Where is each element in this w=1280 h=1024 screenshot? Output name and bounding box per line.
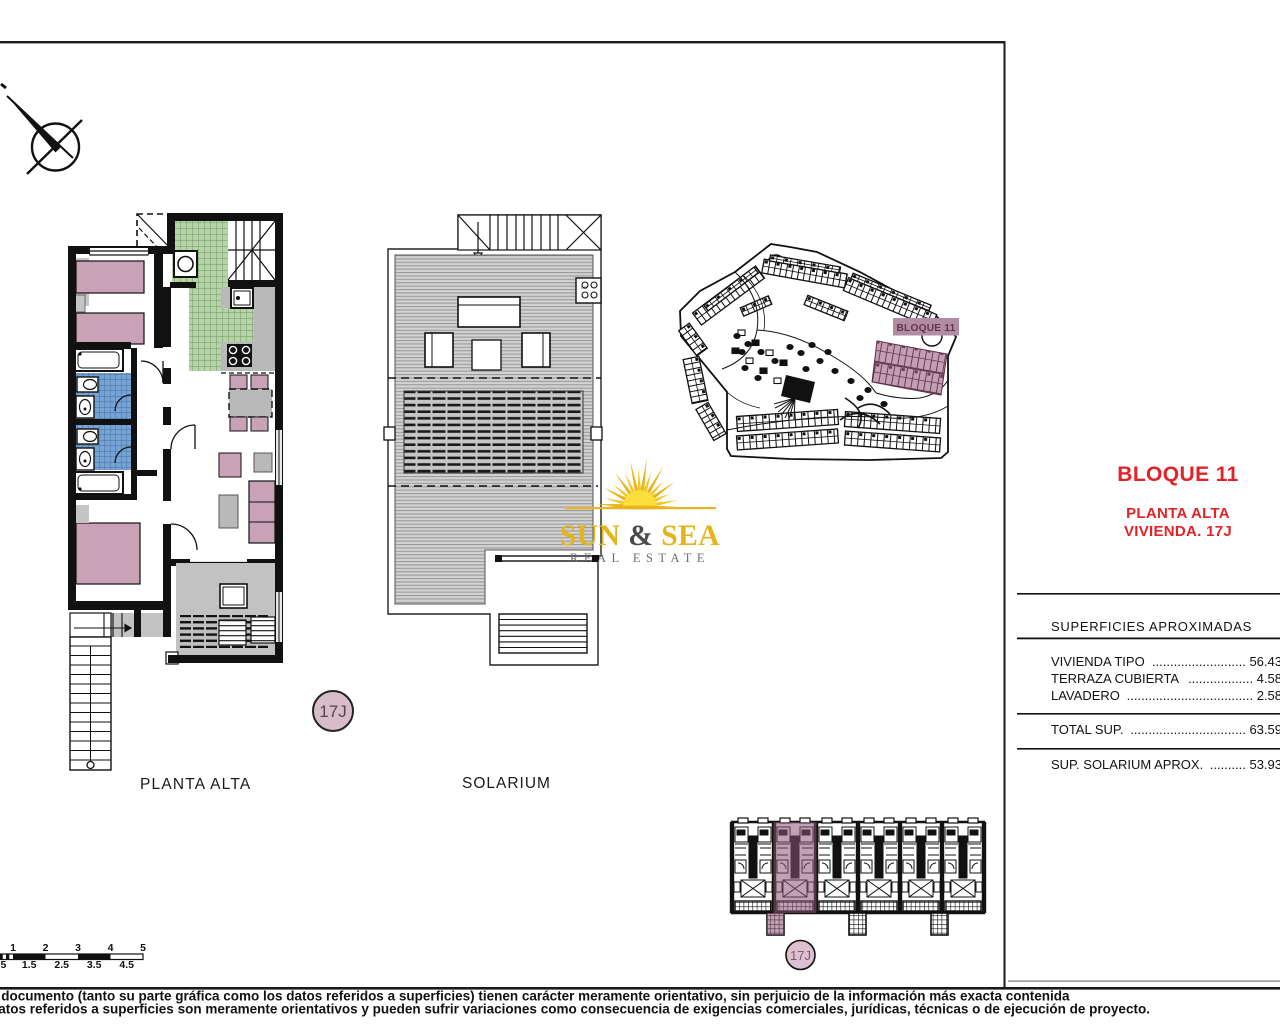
svg-text:TOTAL SUP.: TOTAL SUP. [1051, 722, 1124, 737]
svg-text:LAVADERO: LAVADERO [1051, 688, 1120, 703]
svg-text:17J: 17J [790, 948, 811, 963]
svg-text:SUPERFICIES APROXIMADAS: SUPERFICIES APROXIMADAS [1051, 619, 1252, 634]
svg-text:1: 1 [10, 942, 16, 954]
svg-text:..............................: ................................... 2.58 [1127, 688, 1280, 703]
svg-text:3: 3 [75, 942, 81, 954]
svg-text:5: 5 [140, 942, 146, 954]
svg-text:PLANTA ALTA: PLANTA ALTA [1126, 505, 1230, 522]
svg-text:3.5: 3.5 [87, 959, 102, 971]
svg-text:4: 4 [108, 942, 114, 954]
svg-text:..............................: ................................ 63.59 [1130, 722, 1280, 737]
svg-text:BLOQUE 11: BLOQUE 11 [1117, 463, 1238, 486]
svg-text:17J: 17J [319, 702, 346, 721]
svg-text:SOLARIUM: SOLARIUM [462, 775, 551, 792]
svg-text:.......................... 56.: .......................... 56.43 [1152, 654, 1280, 669]
svg-text:SUP. SOLARIUM APROX.: SUP. SOLARIUM APROX. [1051, 757, 1203, 772]
svg-text:VIVIENDA. 17J: VIVIENDA. 17J [1124, 523, 1232, 540]
svg-text:VIVIENDA TIPO: VIVIENDA TIPO [1051, 654, 1145, 669]
svg-text:SUN & SEA: SUN & SEA [560, 520, 720, 552]
svg-text:TERRAZA CUBIERTA: TERRAZA CUBIERTA [1051, 671, 1179, 686]
svg-text:BLOQUE 11: BLOQUE 11 [897, 323, 956, 334]
svg-text:PLANTA ALTA: PLANTA ALTA [140, 776, 251, 793]
svg-text:.......... 53.93: .......... 53.93 [1210, 757, 1280, 772]
svg-text:4.5: 4.5 [119, 959, 134, 971]
svg-text:1.5: 1.5 [22, 959, 37, 971]
svg-text:2.5: 2.5 [54, 959, 69, 971]
svg-text:.................. 4.58: .................. 4.58 [1188, 671, 1280, 686]
svg-text:datos referidos a superficies: datos referidos a superficies son merame… [0, 1002, 1150, 1017]
svg-text:2: 2 [43, 942, 49, 954]
svg-text:CO: CO [581, 285, 587, 290]
svg-text:REAL ESTATE: REAL ESTATE [570, 551, 710, 565]
svg-text:.5: .5 [0, 959, 7, 971]
